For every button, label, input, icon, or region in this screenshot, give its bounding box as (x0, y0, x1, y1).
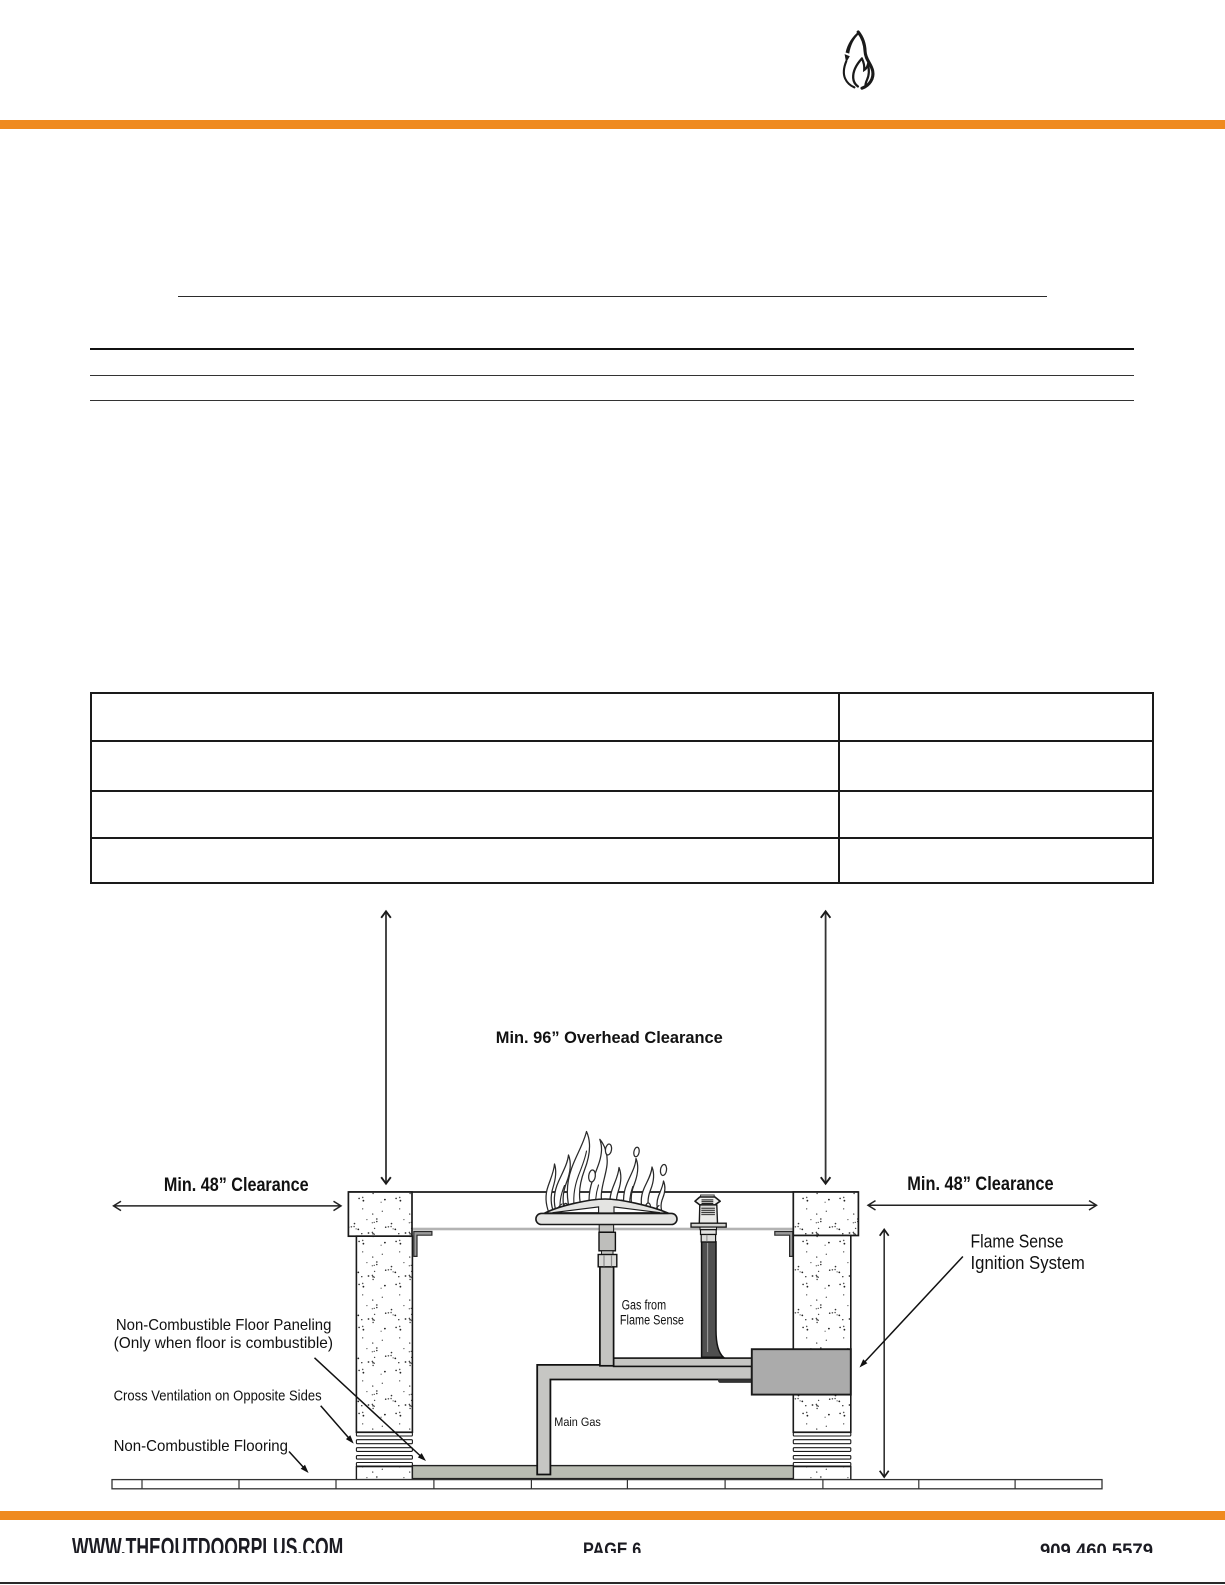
svg-text:Non-Combustible Flooring: Non-Combustible Flooring (114, 1438, 288, 1455)
svg-text:Main Gas: Main Gas (554, 1415, 601, 1429)
svg-text:Min. 48” Clearance: Min. 48” Clearance (907, 1173, 1053, 1195)
svg-text:Min. 96” Overhead Clearance: Min. 96” Overhead Clearance (496, 1028, 723, 1047)
svg-text:Flame Sense: Flame Sense (620, 1313, 684, 1328)
svg-text:Ignition System: Ignition System (971, 1253, 1085, 1273)
svg-text:Non-Combustible Floor Paneling: Non-Combustible Floor Paneling (116, 1317, 332, 1334)
svg-text:Flame Sense: Flame Sense (971, 1231, 1064, 1251)
svg-text:Min. 48” Clearance: Min. 48” Clearance (164, 1174, 309, 1196)
svg-text:(Only when floor is combustibl: (Only when floor is combustible) (114, 1335, 333, 1352)
svg-text:Cross Ventilation on Opposite: Cross Ventilation on Opposite Sides (114, 1388, 322, 1404)
svg-text:Gas from: Gas from (622, 1297, 667, 1312)
